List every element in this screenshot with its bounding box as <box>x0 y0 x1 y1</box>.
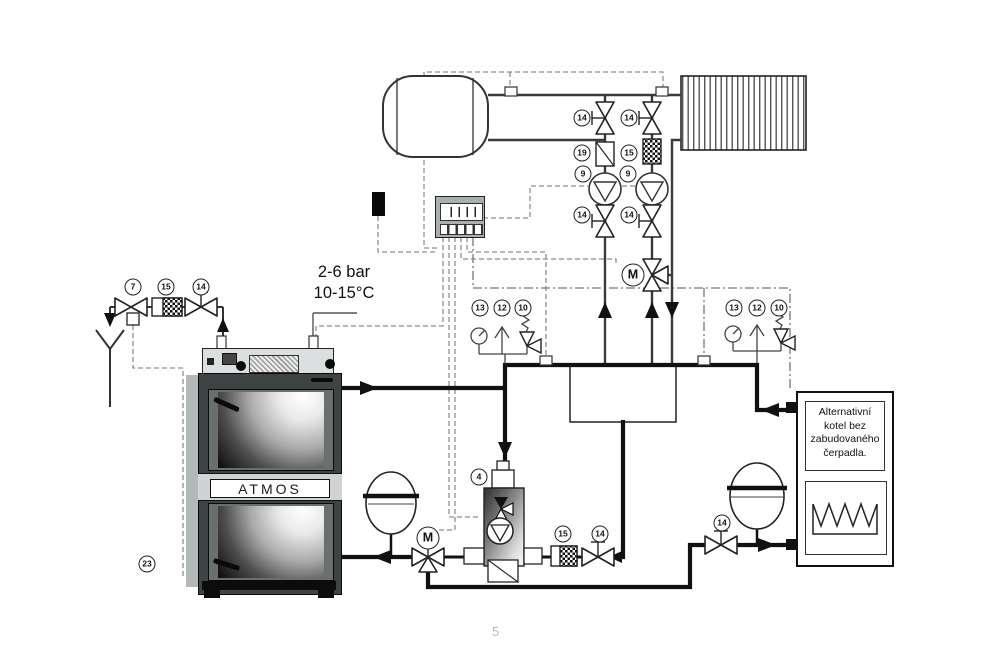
boiler-brand-band: ATMOS <box>198 473 342 501</box>
safety-valve-icon <box>520 316 541 354</box>
control-knob <box>325 359 335 369</box>
safety-valve-icon <box>774 313 795 351</box>
pressure-line1: 2-6 bar <box>292 262 396 283</box>
ball-valve-bottom <box>582 542 614 566</box>
switch <box>222 353 237 365</box>
alternative-boiler: Alternativníkotel bezzabudovanéhočerpadl… <box>796 391 894 567</box>
funnel <box>96 330 124 349</box>
boiler-control-panel <box>202 348 334 374</box>
thermometer-icon <box>495 327 509 354</box>
terminal-strip <box>440 224 483 235</box>
motor-mixing-valve-top <box>643 259 668 291</box>
footer-mark: 5 <box>492 624 499 639</box>
capillary-wire <box>133 325 183 578</box>
boiler-brand-label: ATMOS <box>210 479 330 498</box>
storage-tank <box>383 76 488 157</box>
instruments-left <box>471 316 541 364</box>
radiator <box>681 76 806 150</box>
boiler-foot <box>318 590 334 598</box>
wall-sensor <box>372 192 385 216</box>
upper-door <box>208 389 334 471</box>
distribution-manifold <box>570 366 676 422</box>
circuit2 <box>636 102 668 291</box>
heating-element-icon <box>806 482 884 552</box>
relief-valve-7 <box>115 298 147 325</box>
thermostat-display <box>249 355 299 373</box>
boiler-foot <box>204 590 220 598</box>
pressure-line2: 10-15°C <box>292 283 396 304</box>
mixvalve-bottom-wire <box>439 237 455 530</box>
thermometer-icon <box>750 325 764 351</box>
filter-left <box>152 298 182 316</box>
atmos-boiler: ATMOS <box>186 346 342 602</box>
expansion-vessel-left <box>363 472 419 557</box>
alternative-boiler-note: Alternativníkotel bezzabudovanéhočerpadl… <box>805 401 885 471</box>
filter-bottom <box>551 546 577 566</box>
lower-door <box>208 503 334 581</box>
damper-handle <box>311 378 333 382</box>
control-display <box>440 203 483 221</box>
motor-mixing-valve-bottom <box>412 548 444 572</box>
filter-circuit2 <box>643 139 661 164</box>
laddomat <box>464 461 542 582</box>
instruments-right <box>725 313 795 363</box>
ball-valve-left <box>185 292 217 316</box>
heating-element-box <box>805 481 887 555</box>
pump-wire-1 <box>483 186 588 218</box>
indicator-light <box>207 358 214 365</box>
control-knob <box>236 361 246 371</box>
filling-pressure-note: 2-6 bar 10-15°C <box>292 262 396 304</box>
diagram-canvas: 2-6 bar 10-15°C ATMOS <box>0 0 1008 654</box>
control-unit <box>435 196 485 238</box>
expansion-vessel-right <box>727 463 787 545</box>
boiler-body: ATMOS <box>198 373 342 595</box>
thermostat-wire <box>378 216 436 252</box>
boiler-base <box>202 581 336 590</box>
ball-valve-right <box>705 531 737 554</box>
